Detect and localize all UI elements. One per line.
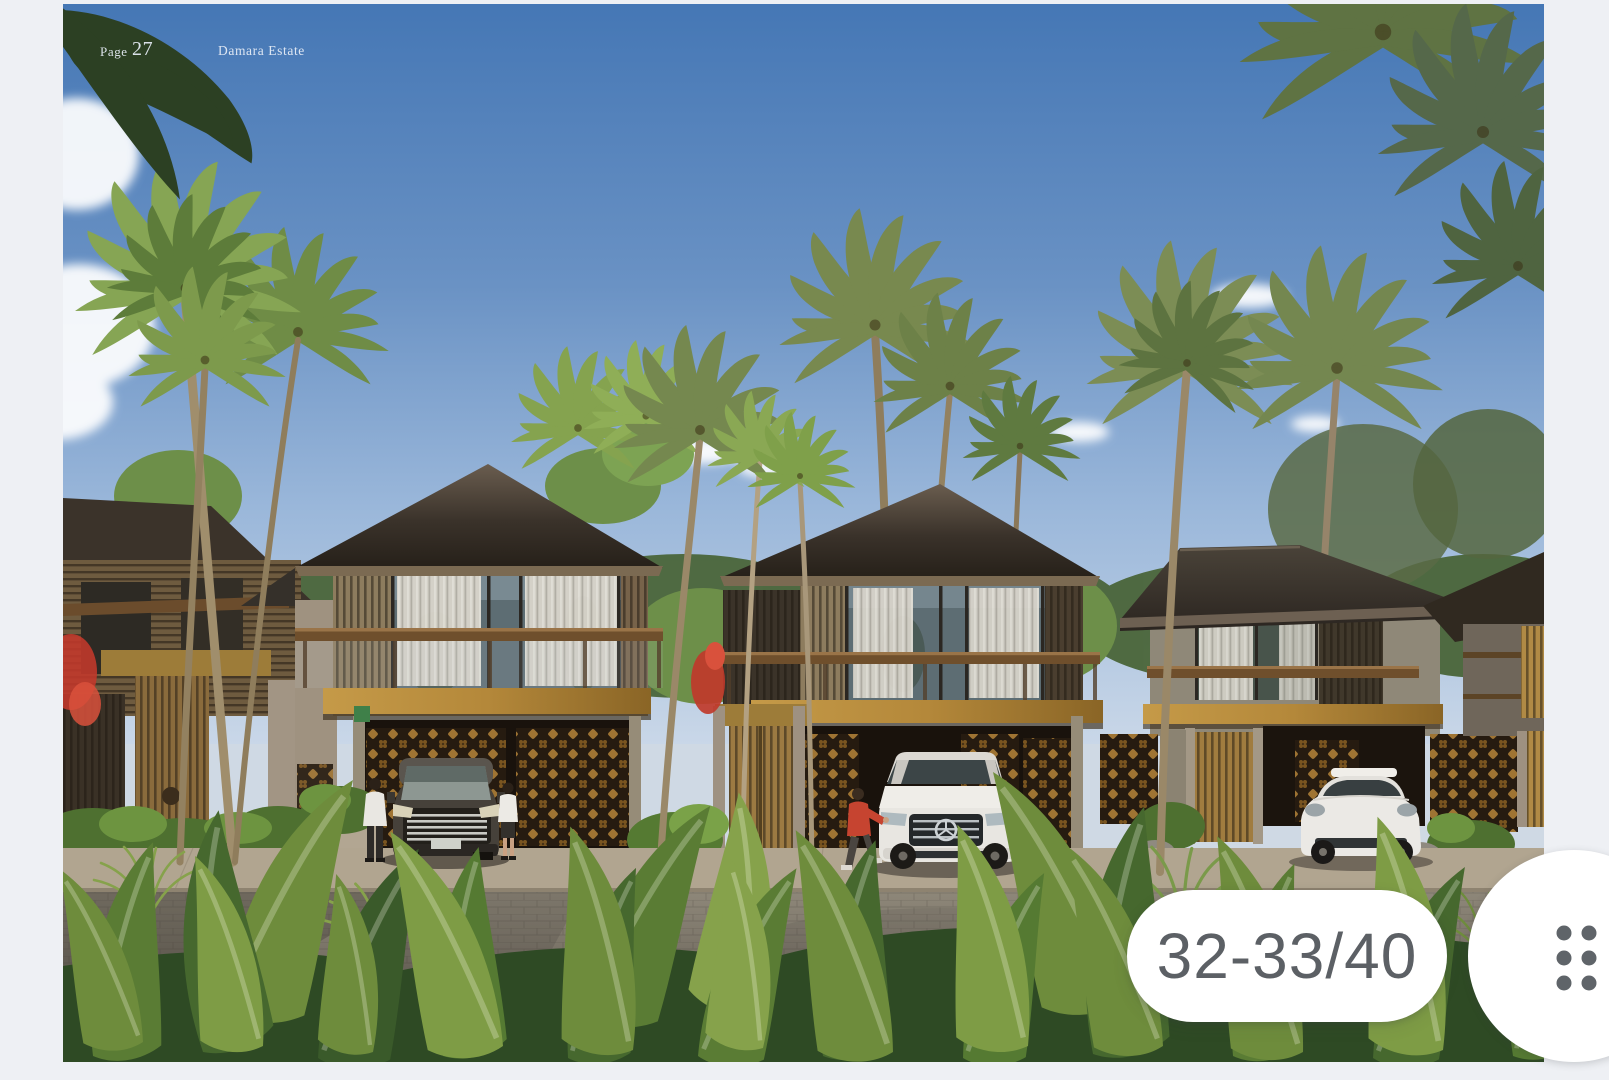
brochure-title: Damara Estate [218,43,305,59]
drag-handle-dots-icon [1556,925,1597,1016]
viewer-stage: Page 27 Damara Estate 32-33/40 [0,0,1609,1080]
page-indicator-pill[interactable]: 32-33/40 [1127,890,1447,1022]
page-number: 27 [132,38,153,61]
page-label: Page [100,44,128,60]
